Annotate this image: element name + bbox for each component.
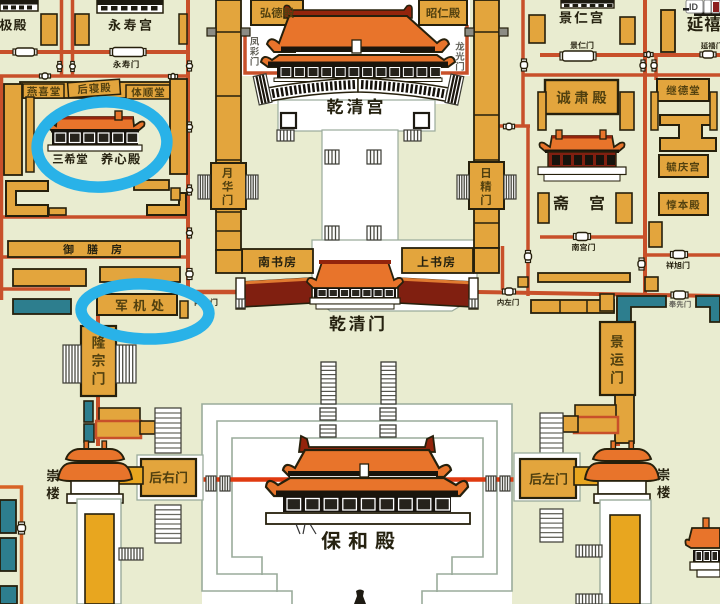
svg-text:ID: ID <box>689 2 699 12</box>
